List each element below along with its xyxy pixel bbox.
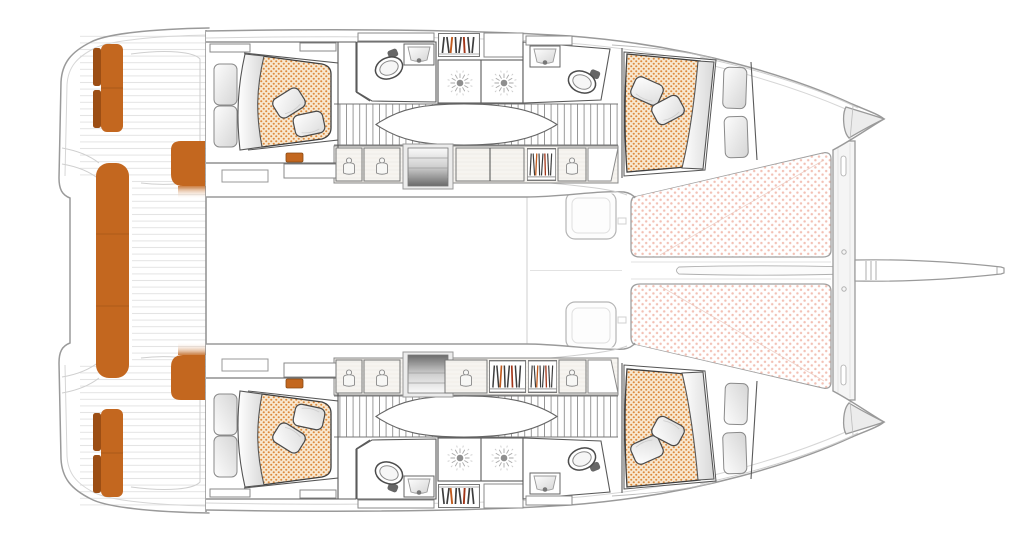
center-spine — [677, 266, 851, 275]
companionway-treads — [408, 148, 448, 186]
seat-cushion — [214, 106, 237, 147]
cabin-counter — [284, 164, 338, 178]
bookshelf — [528, 361, 556, 393]
bow-cushion — [723, 67, 747, 109]
aft-bathroom — [357, 33, 436, 102]
bookshelf — [527, 149, 555, 181]
sink — [530, 46, 560, 67]
seat-cushion — [214, 64, 237, 105]
port-corner-seat-fade — [178, 186, 206, 199]
shower-head — [448, 71, 473, 96]
starboard-corner-seat-fade — [178, 342, 206, 355]
cabin-shelf — [300, 43, 336, 51]
sink — [530, 473, 560, 494]
transom-seat-pad — [93, 413, 101, 451]
hatch-hinge — [618, 317, 626, 323]
storage-cabinet — [484, 33, 523, 57]
bow-cushion — [724, 116, 748, 158]
bowsprit — [855, 260, 1004, 281]
catamaran-floor-plan — [0, 0, 1024, 541]
aft-main-bench — [96, 163, 129, 378]
deck-planking — [132, 180, 206, 361]
deck-hatch — [566, 192, 616, 239]
transom-seat-pad — [93, 455, 101, 493]
floor-plan-canvas — [0, 0, 1024, 541]
port-corner-seat — [171, 141, 205, 186]
companionway-steps — [403, 144, 453, 189]
starboard-corner-seat — [171, 355, 205, 400]
deck-hatch — [566, 302, 616, 349]
hatch-hinge — [618, 218, 626, 224]
bathroom-shelf — [526, 36, 572, 45]
transom-seat-pad — [93, 48, 101, 86]
sink — [404, 44, 434, 65]
aft-cockpit — [59, 28, 209, 513]
bathroom-shelf — [358, 33, 434, 41]
forward-crossbeam — [833, 141, 855, 400]
shower-head — [492, 71, 517, 96]
beam-fitting — [841, 365, 846, 385]
starboard-inner-row — [336, 360, 618, 393]
sink — [404, 476, 434, 497]
port-inner-row — [336, 148, 618, 181]
bookshelf — [439, 34, 480, 57]
beam-fitting — [841, 156, 846, 176]
transom-seat-pad — [93, 90, 101, 128]
bridgedeck — [527, 183, 626, 358]
bookshelf — [489, 361, 525, 393]
cabin-shelf — [210, 44, 250, 52]
bed-step — [286, 153, 303, 162]
cabin-drawer — [222, 170, 268, 182]
